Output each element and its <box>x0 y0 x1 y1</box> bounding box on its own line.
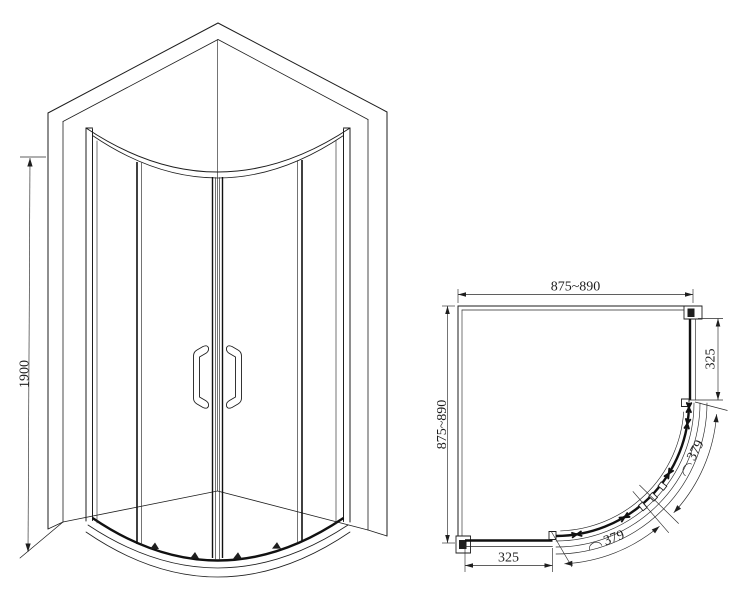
fixed-panel-right <box>682 319 699 407</box>
width-dimension-top: 875~890 <box>458 280 693 304</box>
dimension-arrow-up <box>716 319 721 327</box>
panel-dimension-right-label: 325 <box>704 349 719 370</box>
plan-walls <box>458 306 684 536</box>
arc-arrow <box>652 524 661 533</box>
dimension-arrow-up <box>445 306 450 314</box>
shower-tray-edge <box>556 403 707 554</box>
panel-dimension-right: 325 <box>698 319 723 401</box>
top-rail <box>86 128 350 178</box>
arc-arrow <box>564 561 572 567</box>
dimension-arrow-left <box>465 563 473 568</box>
dimension-arrow-down <box>716 392 721 400</box>
width-dimension-left: 875~890 <box>435 306 455 543</box>
height-dimension: 1900 <box>18 157 47 552</box>
dimension-arrow-left <box>458 292 466 297</box>
fixed-panel-bottom <box>465 532 556 547</box>
arc-arrow <box>713 414 719 422</box>
left-door-handle <box>194 346 209 408</box>
wall-profile-bottom-left <box>456 536 471 553</box>
bottom-rail-and-tray <box>86 518 350 577</box>
dimension-arrow-right <box>545 563 553 568</box>
plan-view: 875~890 875~890 325 325 <box>435 280 728 573</box>
height-dimension-label: 1900 <box>18 360 33 388</box>
arc-arrow <box>672 505 681 514</box>
panel-dimension-bottom: 325 <box>465 548 553 572</box>
arc-dimension-upper-label: 379 <box>685 438 708 464</box>
arc-dimension-lower-label: 379 <box>602 528 627 549</box>
dimension-arrow-down <box>25 544 30 553</box>
arc-dimension-upper-door: 379 <box>639 402 727 524</box>
width-dimension-top-label: 875~890 <box>551 280 601 295</box>
technical-drawing-page: 1900 <box>0 0 752 600</box>
wall-profile-top-right <box>684 306 702 319</box>
dimension-arrow-down <box>445 535 450 543</box>
door-guide-clips <box>639 482 667 511</box>
shower-enclosure-drawing: 1900 <box>0 0 752 600</box>
dimension-arrow-up <box>27 158 32 167</box>
curved-sliding-doors <box>556 403 694 541</box>
width-dimension-left-label: 875~890 <box>435 400 450 450</box>
front-view: 1900 <box>18 23 388 577</box>
door-roller-marks <box>572 403 691 537</box>
shower-frame-posts <box>86 128 350 522</box>
glass-panels <box>97 141 336 560</box>
dimension-arrow-right <box>685 292 693 297</box>
right-door-handle <box>226 346 241 408</box>
panel-dimension-bottom-label: 325 <box>498 551 519 566</box>
